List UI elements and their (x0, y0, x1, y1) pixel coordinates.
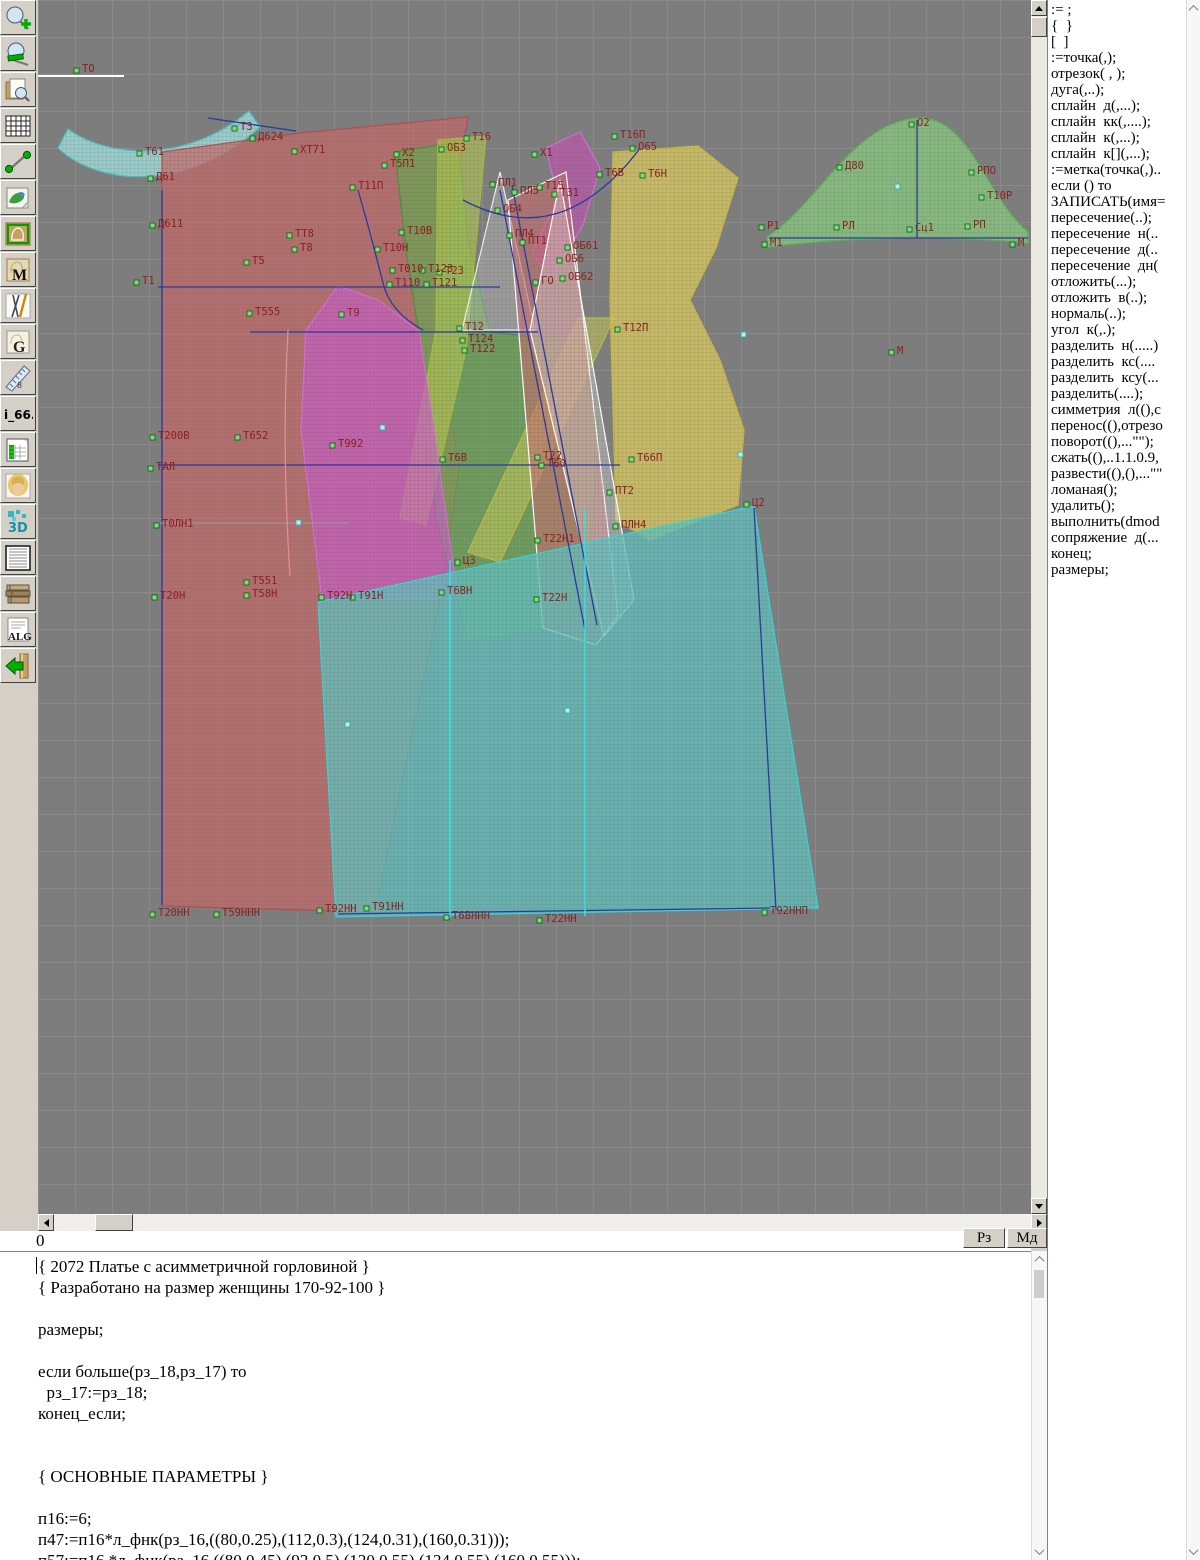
point-marker[interactable] (137, 151, 142, 156)
code-line (38, 1298, 1031, 1319)
chevron-up-icon (1189, 5, 1199, 15)
point-marker[interactable] (889, 350, 894, 355)
point-marker[interactable] (390, 268, 395, 273)
editor-scrollbar[interactable] (1031, 1251, 1047, 1560)
point-label: Т6В (448, 452, 467, 464)
command-item[interactable]: [ ] (1051, 34, 1186, 50)
canvas-hscrollbar[interactable] (38, 1214, 1047, 1231)
point-label: Т6В (605, 167, 624, 179)
point-marker[interactable] (292, 149, 297, 154)
measure-icon (3, 148, 33, 176)
point-marker[interactable] (424, 282, 429, 287)
code-line (38, 1487, 1031, 1508)
point-label: Т121 (432, 277, 457, 289)
code-line: рз_17:=рз_18; (38, 1382, 1031, 1403)
command-item[interactable]: конец; (1051, 546, 1186, 562)
command-item[interactable]: нормаль(..); (1051, 306, 1186, 322)
command-item[interactable]: ЗАПИСАТЬ(имя= (1051, 194, 1186, 210)
point-marker[interactable] (244, 260, 249, 265)
canvas-vscrollbar[interactable] (1031, 0, 1047, 1214)
panel-scroll-up-button[interactable] (1187, 0, 1200, 17)
point-label: РПО (977, 165, 996, 177)
sheet-preview-button[interactable] (0, 72, 36, 107)
command-item[interactable]: сплайн к[](,...); (1051, 146, 1186, 162)
point-marker[interactable] (762, 242, 767, 247)
point-marker[interactable] (134, 280, 139, 285)
point-label: Д80 (845, 160, 864, 172)
spreadsheet-button[interactable] (0, 432, 36, 467)
point-marker[interactable] (394, 152, 399, 157)
point-label: Т22Н1 (543, 533, 575, 545)
point-label: Т10Р (987, 190, 1012, 202)
point-label: Т555 (255, 306, 280, 318)
point-label: ОБ4 (503, 203, 522, 215)
point-marker[interactable] (150, 223, 155, 228)
left-arrow-icon (44, 1219, 49, 1227)
command-item[interactable]: отложить(...); (1051, 274, 1186, 290)
point-label: Т20Н (160, 590, 185, 602)
point-marker[interactable] (534, 597, 539, 602)
point-marker[interactable] (439, 147, 444, 152)
command-item[interactable]: если () то (1051, 178, 1186, 194)
point-label: РЛ (842, 220, 855, 232)
point-label: Т122 (470, 343, 495, 355)
code-line: { Разработано на размер женщины 170-92-1… (38, 1277, 1031, 1298)
command-item[interactable]: поворот((),...""); (1051, 434, 1186, 450)
point-label: ПЛН4 (621, 519, 646, 531)
point-label: Т92ННП (770, 905, 808, 917)
command-item[interactable]: пересечение д(.. (1051, 242, 1186, 258)
point-marker[interactable] (457, 326, 462, 331)
point-label: Т10Н (383, 242, 408, 254)
point-label: М (897, 345, 903, 357)
magnifier-minus-icon (3, 40, 33, 68)
scroll-up-button[interactable] (1031, 0, 1047, 16)
point-label: Т12П (623, 322, 648, 334)
point-marker[interactable] (339, 312, 344, 317)
point-marker[interactable] (382, 163, 387, 168)
point-label: ОБ62 (568, 271, 593, 283)
point-marker[interactable] (247, 311, 252, 316)
command-list: := ;{ }[ ]:=точка(,);отрезок( , );дуга(,… (1047, 0, 1186, 1560)
pattern-m-icon: M (3, 256, 33, 284)
point-marker[interactable] (460, 338, 465, 343)
command-item[interactable]: развести((),(),..."" (1051, 466, 1186, 482)
point-label: Т110 (395, 277, 420, 289)
point-marker[interactable] (744, 502, 749, 507)
command-item[interactable]: сплайн д(,...); (1051, 98, 1186, 114)
point-marker[interactable] (455, 560, 460, 565)
point-marker-cyan[interactable] (380, 425, 385, 430)
point-label: Т010 (398, 263, 423, 275)
point-label: Т652 (243, 430, 268, 442)
point-marker[interactable] (244, 593, 249, 598)
command-item[interactable]: ломаная(); (1051, 482, 1186, 498)
point-label: РП (973, 219, 986, 231)
point-label: ТО (82, 63, 95, 75)
map-icon (3, 184, 33, 212)
status-row: 0 Рз Мд (0, 1231, 1031, 1251)
point-marker[interactable] (235, 435, 240, 440)
point-marker[interactable] (350, 185, 355, 190)
point-marker[interactable] (532, 152, 537, 157)
point-marker[interactable] (969, 170, 974, 175)
point-marker[interactable] (495, 208, 500, 213)
editor-scroll-down-button[interactable] (1032, 1543, 1047, 1560)
pattern-m-button[interactable]: M (0, 252, 36, 287)
point-label: Т60 (547, 458, 566, 470)
point-label: Т6ВН (447, 585, 472, 597)
ruler-icon: 8 (3, 364, 33, 392)
point-label: Т8 (300, 242, 313, 254)
point-marker[interactable] (612, 134, 617, 139)
grid-icon (3, 112, 33, 140)
code-line: { ОСНОВНЫЕ ПАРАМЕТРЫ } (38, 1466, 1031, 1487)
code-line (38, 1445, 1031, 1466)
code-line: размеры; (38, 1319, 1031, 1340)
point-marker[interactable] (1010, 242, 1015, 247)
point-marker[interactable] (292, 247, 297, 252)
code-line (38, 1424, 1031, 1445)
point-marker[interactable] (965, 224, 970, 229)
point-marker[interactable] (762, 910, 767, 915)
point-marker[interactable] (597, 172, 602, 177)
point-label: Д61 (156, 171, 175, 183)
toolbar: MG8i_66.3DALG (0, 0, 38, 686)
point-marker[interactable] (364, 906, 369, 911)
pattern-canvas[interactable]: ТОТ3Д624Т61ХТ71Д61Д611Х2Т5П1ОБ3Т16Х1Т16П… (38, 0, 1031, 1214)
point-marker-cyan[interactable] (895, 184, 900, 189)
chevron-down-icon (1035, 1545, 1045, 1555)
command-item[interactable]: разделить н(.....) (1051, 338, 1186, 354)
svg-text:8: 8 (17, 381, 22, 390)
text-caret (36, 1257, 37, 1274)
point-marker[interactable] (533, 280, 538, 285)
pattern-g-button[interactable]: G (0, 324, 36, 359)
command-item[interactable]: пересечение дн( (1051, 258, 1186, 274)
point-label: ХТ71 (300, 144, 325, 156)
point-label: Т6ВННН (452, 910, 490, 922)
code-line: { 2072 Платье с асимметричной горловиной… (38, 1256, 1031, 1277)
point-label: Т16П (620, 129, 645, 141)
alg-icon: ALG (3, 616, 33, 644)
point-marker[interactable] (154, 523, 159, 528)
point-marker[interactable] (152, 595, 157, 600)
point-marker[interactable] (507, 233, 512, 238)
point-marker[interactable] (319, 595, 324, 600)
point-label: Т59ННН (222, 907, 260, 919)
command-item[interactable]: угол к(,.); (1051, 322, 1186, 338)
point-marker[interactable] (440, 457, 445, 462)
point-marker[interactable] (464, 136, 469, 141)
point-label: Т31 (560, 187, 579, 199)
point-marker[interactable] (148, 466, 153, 471)
point-label: Т92НН (325, 903, 357, 915)
code-line: п16:=6; (38, 1508, 1031, 1529)
command-item[interactable]: пересечение(..); (1051, 210, 1186, 226)
books-button[interactable] (0, 576, 36, 611)
point-marker[interactable] (387, 282, 392, 287)
command-item[interactable]: :=точка(,); (1051, 50, 1186, 66)
point-marker[interactable] (557, 258, 562, 263)
magnifier-plus-icon (3, 4, 33, 32)
chevron-down-icon (1189, 1545, 1199, 1555)
point-marker[interactable] (837, 165, 842, 170)
point-marker[interactable] (244, 580, 249, 585)
command-item[interactable]: сопряжение д(... (1051, 530, 1186, 546)
point-marker[interactable] (615, 327, 620, 332)
rz-button[interactable]: Рз (963, 1228, 1005, 1248)
point-label: Т91НН (372, 901, 404, 913)
point-marker[interactable] (535, 455, 540, 460)
point-label: ТТ8 (295, 228, 314, 240)
point-marker[interactable] (462, 348, 467, 353)
point-marker-cyan[interactable] (296, 520, 301, 525)
point-label: Т6Н (648, 168, 667, 180)
editor-scroll-up-button[interactable] (1032, 1251, 1047, 1268)
point-marker[interactable] (232, 126, 237, 131)
point-marker[interactable] (330, 443, 335, 448)
code-line: конец_если; (38, 1403, 1031, 1424)
pattern-frame-button[interactable] (0, 216, 36, 251)
point-label: Т22Н (542, 592, 567, 604)
threed-icon: 3D (3, 508, 33, 536)
command-item[interactable]: сжать((),..1.1.0.9, (1051, 450, 1186, 466)
point-label: ОБ6 (565, 253, 584, 265)
point-marker[interactable] (287, 233, 292, 238)
command-item[interactable]: разделить ксу(... (1051, 370, 1186, 386)
point-marker[interactable] (759, 225, 764, 230)
point-marker[interactable] (629, 457, 634, 462)
command-item[interactable]: выполнить(dmod (1051, 514, 1186, 530)
point-label: ТАЛ (156, 461, 175, 473)
point-label: Т10В (407, 225, 432, 237)
point-label: Р1 (767, 220, 780, 232)
threed-button[interactable]: 3D (0, 504, 36, 539)
svg-text:M: M (12, 267, 27, 284)
editor-scroll-thumb[interactable] (1034, 1270, 1044, 1298)
code-line: п47:=п16*л_фнк(рз_16,((80,0.25),(112,0.3… (38, 1529, 1031, 1550)
point-marker[interactable] (613, 524, 618, 529)
point-label: Х1 (540, 147, 553, 159)
point-marker[interactable] (630, 146, 635, 151)
pattern-frame-icon (3, 220, 33, 248)
command-list-scrollbar[interactable] (1186, 0, 1200, 1560)
point-label: Т91Н (358, 590, 383, 602)
svg-text:3D: 3D (8, 521, 28, 536)
command-item[interactable]: := ; (1051, 2, 1186, 18)
point-label: Т9 (347, 307, 360, 319)
point-marker[interactable] (375, 247, 380, 252)
point-marker[interactable] (565, 245, 570, 250)
command-item[interactable]: разделить кс(.... (1051, 354, 1186, 370)
point-marker-cyan[interactable] (345, 722, 350, 727)
point-label: Т992 (338, 438, 363, 450)
point-label: ГО (541, 275, 554, 287)
point-label: Т200В (158, 430, 190, 442)
point-label: ОБ61 (573, 240, 598, 252)
point-label: Д624 (258, 131, 283, 143)
svg-text:ALG: ALG (8, 631, 32, 643)
point-label: ПЛ1 (498, 177, 517, 189)
point-label: О2 (917, 117, 930, 129)
command-item[interactable]: симметрия л((),с (1051, 402, 1186, 418)
point-marker[interactable] (512, 190, 517, 195)
sheet-magnifier-icon (3, 76, 33, 104)
point-label: Ц3 (463, 555, 476, 567)
exit-icon (3, 652, 33, 680)
point-label: Т61 (145, 146, 164, 158)
exit-button[interactable] (0, 648, 36, 683)
code-line (38, 1340, 1031, 1361)
point-label: М (1018, 237, 1024, 249)
scroll-position-value: 0 (36, 1231, 45, 1251)
point-marker[interactable] (490, 182, 495, 187)
point-label: Т22НН (545, 913, 577, 925)
point-label: Ц2 (752, 497, 765, 509)
up-arrow-icon (1035, 6, 1043, 11)
command-item[interactable]: { } (1051, 18, 1186, 34)
books-icon (3, 580, 33, 608)
point-label: ПТ2 (615, 485, 634, 497)
point-label: Т20НН (158, 907, 190, 919)
panel-scroll-down-button[interactable] (1187, 1543, 1200, 1560)
point-label: Т3 (240, 121, 253, 133)
point-marker[interactable] (74, 68, 79, 73)
point-marker[interactable] (979, 195, 984, 200)
point-marker[interactable] (537, 918, 542, 923)
point-label: Т66П (637, 452, 662, 464)
code-editor[interactable]: { 2072 Платье с асимметричной горловиной… (0, 1251, 1031, 1560)
point-marker-cyan[interactable] (738, 452, 743, 457)
pattern-g-icon: G (3, 328, 33, 356)
point-marker[interactable] (317, 908, 322, 913)
point-label: Т58Н (252, 588, 277, 600)
piece-texture (610, 146, 744, 540)
down-arrow-icon (1035, 1204, 1043, 1209)
point-marker-cyan[interactable] (741, 332, 746, 337)
point-label: ПЛ5 (520, 185, 539, 197)
point-marker[interactable] (552, 192, 557, 197)
alg-button[interactable]: ALG (0, 612, 36, 647)
pattern-drawing: ТОТ3Д624Т61ХТ71Д61Д611Х2Т5П1ОБ3Т16Х1Т16П… (38, 0, 1031, 1214)
drafting-tools-button[interactable] (0, 288, 36, 323)
hscroll-thumb[interactable] (95, 1214, 133, 1231)
command-item[interactable]: пересечение н(.. (1051, 226, 1186, 242)
point-marker[interactable] (520, 240, 525, 245)
point-label: Т92Н (327, 590, 352, 602)
point-label: Т551 (252, 575, 277, 587)
code-line: п57:=п16 *л_фнк(рз_16,((80,0.45),(92,0.5… (38, 1550, 1031, 1560)
ruler-button[interactable]: 8 (0, 360, 36, 395)
point-label: Т12 (465, 321, 484, 333)
code-line: если больше(рз_18,рз_17) то (38, 1361, 1031, 1382)
point-label: М1 (770, 237, 783, 249)
point-marker[interactable] (607, 490, 612, 495)
point-marker[interactable] (907, 227, 912, 232)
md-button[interactable]: Мд (1007, 1228, 1047, 1248)
text-list-button[interactable] (0, 540, 36, 575)
point-label: Т16 (472, 131, 491, 143)
app-window: MG8i_66.3DALG ТОТ3Д624Т61ХТ71Д61Д611Х2Т5… (0, 0, 1200, 1560)
point-marker[interactable] (640, 173, 645, 178)
command-item[interactable]: сплайн к(,...); (1051, 130, 1186, 146)
svg-text:i_66.: i_66. (4, 408, 33, 423)
image-button[interactable] (0, 180, 36, 215)
point-marker[interactable] (150, 435, 155, 440)
scroll-down-button[interactable] (1031, 1198, 1047, 1214)
vscroll-thumb[interactable] (1031, 17, 1047, 37)
right-arrow-icon (1037, 1219, 1042, 1227)
command-item[interactable]: перенос((),отрезо (1051, 418, 1186, 434)
point-label: ПТ1 (528, 235, 547, 247)
point-marker[interactable] (399, 230, 404, 235)
command-item[interactable]: разделить(....); (1051, 386, 1186, 402)
i66-button[interactable]: i_66. (0, 396, 36, 431)
point-marker[interactable] (909, 122, 914, 127)
command-item[interactable]: сплайн кк(,....); (1051, 114, 1186, 130)
model-photo-icon (3, 472, 33, 500)
point-label: Т5П1 (390, 158, 415, 170)
zoom-in-button[interactable] (0, 0, 36, 35)
point-label: ОБ3 (447, 142, 466, 154)
zoom-out-button[interactable] (0, 36, 36, 71)
spreadsheet-icon (3, 436, 33, 464)
point-marker[interactable] (539, 463, 544, 468)
point-marker[interactable] (250, 136, 255, 141)
measure-button[interactable] (0, 144, 36, 179)
point-label: Т5 (252, 255, 265, 267)
drafting-tools-icon (3, 292, 33, 320)
scroll-left-button[interactable] (38, 1214, 54, 1231)
point-label: Т0ЛН1 (162, 518, 194, 530)
point-marker[interactable] (834, 225, 839, 230)
command-item[interactable]: размеры; (1051, 562, 1186, 578)
point-marker[interactable] (439, 590, 444, 595)
piece-texture (767, 118, 1028, 247)
command-item[interactable]: дуга(,..); (1051, 82, 1186, 98)
chevron-up-icon (1035, 1256, 1045, 1266)
svg-text:G: G (13, 339, 26, 356)
point-label: Т23 (445, 265, 464, 277)
command-item[interactable]: удалить(); (1051, 498, 1186, 514)
point-marker[interactable] (444, 915, 449, 920)
point-marker[interactable] (214, 912, 219, 917)
point-marker[interactable] (535, 538, 540, 543)
grid-button[interactable] (0, 108, 36, 143)
point-marker[interactable] (148, 176, 153, 181)
command-item[interactable]: отрезок( , ); (1051, 66, 1186, 82)
point-label: Д611 (158, 218, 183, 230)
command-item[interactable]: :=метка(точка(,).. (1051, 162, 1186, 178)
point-marker[interactable] (560, 276, 565, 281)
point-label: О65 (638, 141, 657, 153)
command-item[interactable]: отложить в(..); (1051, 290, 1186, 306)
point-label: Сц1 (915, 222, 934, 234)
point-label: Т1 (142, 275, 155, 287)
i66-icon: i_66. (3, 400, 33, 428)
point-marker-cyan[interactable] (565, 708, 570, 713)
text-list-icon (3, 544, 33, 572)
model-photo-button[interactable] (0, 468, 36, 503)
point-label: Т11П (358, 180, 383, 192)
point-marker[interactable] (150, 912, 155, 917)
